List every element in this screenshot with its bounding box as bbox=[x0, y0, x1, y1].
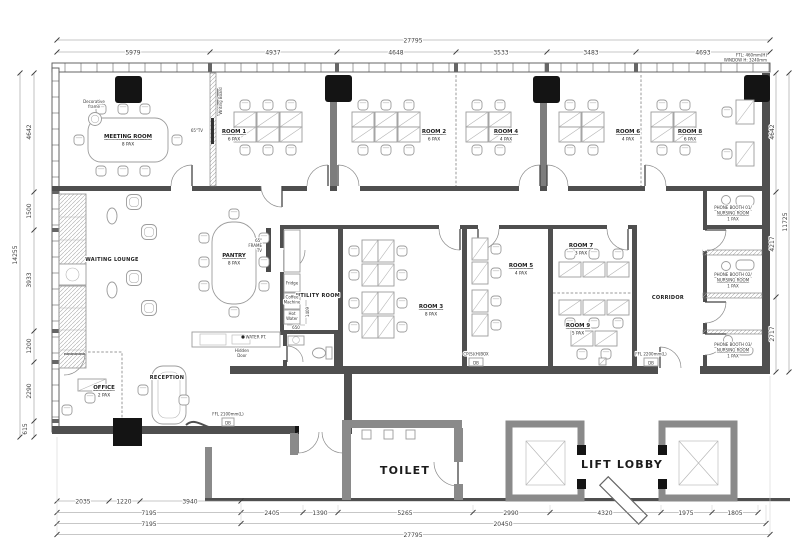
room8-furniture bbox=[651, 100, 754, 166]
label-booth3-pax: 1 PAX bbox=[727, 354, 739, 359]
label-office-pax: 2 PAX bbox=[98, 393, 110, 399]
dim-b2d: 5265 bbox=[397, 510, 412, 517]
room3-furniture bbox=[349, 240, 407, 338]
dimension-chain-left: 14255 4642 1500 3933 1200 2290 615 bbox=[12, 71, 37, 440]
toilet-east-wall-b bbox=[454, 484, 463, 500]
room6-furniture bbox=[559, 100, 604, 155]
wall-room4-room6 bbox=[540, 102, 547, 186]
armchair-icon bbox=[142, 301, 157, 316]
dim-top-2: 4937 bbox=[265, 50, 280, 57]
desk-icon bbox=[352, 127, 374, 142]
room5-furniture bbox=[472, 238, 501, 336]
desk-icon bbox=[489, 112, 511, 127]
mullion-mark bbox=[208, 63, 212, 72]
chair-icon bbox=[381, 100, 391, 110]
dim-left-4: 1200 bbox=[26, 338, 33, 353]
dim-top-4: 3533 bbox=[493, 50, 508, 57]
lift-door-jamb bbox=[658, 479, 667, 489]
room1-furniture bbox=[217, 88, 302, 155]
chair-icon bbox=[229, 209, 239, 219]
wall-room5-room7 bbox=[548, 228, 553, 366]
chair-icon bbox=[491, 244, 501, 254]
label-room3: ROOM 3 bbox=[419, 304, 444, 310]
desk-icon bbox=[583, 300, 605, 315]
label-db-room9: FFL 2200mm(L) bbox=[635, 352, 667, 357]
chair-icon bbox=[358, 145, 368, 155]
water-point-icon bbox=[241, 335, 244, 338]
desk-icon bbox=[378, 240, 394, 262]
wall-toilet-east bbox=[334, 334, 338, 366]
doors bbox=[64, 165, 726, 486]
chair-icon bbox=[172, 135, 182, 145]
column bbox=[115, 76, 142, 103]
urinal-icon bbox=[384, 430, 393, 439]
wall-south-mid bbox=[230, 366, 658, 374]
chair-icon bbox=[140, 166, 150, 176]
label-booth1-pax: 1 PAX bbox=[727, 217, 739, 222]
mullion-mark bbox=[545, 63, 549, 72]
label-frame-tv-c: TV bbox=[256, 248, 262, 253]
column bbox=[533, 76, 560, 103]
lift-door-jamb bbox=[577, 479, 586, 489]
wall-utility-west bbox=[280, 225, 284, 335]
window-wall-top bbox=[52, 63, 770, 72]
label-db-entry: FFL 2100mm(L) bbox=[212, 412, 244, 417]
chair-icon bbox=[565, 249, 575, 259]
desk-icon bbox=[362, 240, 378, 262]
chair-icon bbox=[381, 145, 391, 155]
chair-icon bbox=[118, 104, 128, 114]
label-toilet: TOILET bbox=[380, 464, 430, 477]
external-common-area bbox=[205, 420, 790, 524]
label-room8: ROOM 8 bbox=[678, 129, 703, 135]
chair-icon bbox=[397, 246, 407, 256]
label-room4-pax: 4 PAX bbox=[500, 137, 512, 143]
label-room4: ROOM 4 bbox=[494, 129, 519, 135]
wall-room3-room5 bbox=[462, 228, 467, 366]
room2-furniture bbox=[352, 100, 420, 155]
chair-icon bbox=[349, 246, 359, 256]
label-decorative-frame-b: frame bbox=[88, 104, 100, 109]
label-coffee-b: Machine bbox=[284, 300, 301, 305]
wall-south-west bbox=[52, 426, 298, 434]
mullion-mark bbox=[335, 63, 339, 72]
chair-icon bbox=[74, 135, 84, 145]
desk-icon bbox=[466, 112, 488, 127]
chair-icon bbox=[722, 149, 732, 159]
chair-icon bbox=[613, 249, 623, 259]
dim-b3a: 7195 bbox=[141, 521, 156, 528]
chair-icon bbox=[565, 145, 575, 155]
label-room5: ROOM 5 bbox=[509, 263, 534, 269]
armchair-icon bbox=[127, 271, 142, 286]
label-reception: RECEPTION bbox=[150, 375, 184, 381]
dim-left-1: 4642 bbox=[26, 124, 33, 139]
side-table bbox=[107, 208, 117, 224]
mullion-mark bbox=[454, 63, 458, 72]
chair-icon bbox=[613, 318, 623, 328]
label-room5-pax: 4 PAX bbox=[515, 271, 527, 277]
dim-top-5: 3483 bbox=[583, 50, 598, 57]
stool-icon bbox=[722, 196, 731, 205]
chair-icon bbox=[263, 145, 273, 155]
desk-icon bbox=[559, 300, 581, 315]
label-booth2: PHONE BOOTH 02/ bbox=[714, 272, 752, 277]
label-room1: ROOM 1 bbox=[222, 129, 247, 135]
sofa-icon bbox=[59, 286, 86, 368]
column bbox=[325, 75, 352, 102]
label-hidden-door-b: Door bbox=[237, 353, 247, 358]
chair-icon bbox=[657, 145, 667, 155]
desk-icon bbox=[398, 127, 420, 142]
dim-b3b: 20450 bbox=[493, 521, 512, 528]
chair-icon bbox=[140, 104, 150, 114]
chair-icon bbox=[404, 100, 414, 110]
desk-icon bbox=[375, 127, 397, 142]
label-dim-1409: 1409 bbox=[305, 306, 310, 317]
chair-icon bbox=[657, 100, 667, 110]
dim-right-overall: 11725 bbox=[782, 212, 789, 231]
dim-right-1: 4642 bbox=[769, 124, 776, 139]
toilet-west-wall bbox=[342, 420, 351, 500]
dim-b2g: 1975 bbox=[678, 510, 693, 517]
stool-icon bbox=[722, 262, 731, 271]
desk-icon bbox=[651, 112, 673, 127]
dim-left-overall: 14255 bbox=[12, 245, 19, 264]
dim-b2f: 4320 bbox=[597, 510, 612, 517]
room4-furniture bbox=[466, 100, 511, 155]
dim-top-overall: 27795 bbox=[403, 38, 422, 45]
chair-icon bbox=[286, 145, 296, 155]
dim-b1a: 2035 bbox=[75, 499, 90, 506]
desk-icon bbox=[466, 127, 488, 142]
chair-icon bbox=[495, 145, 505, 155]
desk-icon bbox=[257, 127, 279, 142]
chair-icon bbox=[118, 166, 128, 176]
chair-icon bbox=[96, 166, 106, 176]
desk-icon bbox=[378, 292, 394, 314]
chair-icon bbox=[589, 249, 599, 259]
chair-icon bbox=[138, 385, 148, 395]
urinal-icon bbox=[362, 430, 371, 439]
chair-icon bbox=[179, 395, 189, 405]
label-pantry-pax: 8 PAX bbox=[228, 261, 240, 267]
label-office: OFFICE bbox=[93, 385, 115, 391]
dim-left-2: 1500 bbox=[26, 203, 33, 218]
desk-icon bbox=[352, 112, 374, 127]
dim-right-2: 4217 bbox=[769, 236, 776, 251]
chair-icon bbox=[588, 100, 598, 110]
wc-icon bbox=[313, 348, 326, 358]
chair-icon bbox=[601, 349, 611, 359]
desk-icon bbox=[583, 262, 605, 277]
label-db: DB bbox=[225, 421, 231, 426]
chair-icon bbox=[404, 145, 414, 155]
label-room6-pax: 4 PAX bbox=[622, 137, 634, 143]
desk-icon bbox=[559, 262, 581, 277]
mullion-mark bbox=[52, 419, 59, 423]
wall-room9-corridor bbox=[632, 228, 637, 366]
label-db: DB bbox=[648, 361, 654, 366]
meeting-room-furniture bbox=[74, 104, 214, 176]
label-pantry: PANTRY bbox=[222, 253, 246, 259]
label-room6: ROOM 6 bbox=[616, 129, 641, 135]
chair-icon bbox=[199, 257, 209, 267]
dim-left-5: 2290 bbox=[26, 383, 33, 398]
label-room2-pax: 6 PAX bbox=[428, 137, 440, 143]
column bbox=[744, 75, 770, 102]
meeting-table bbox=[88, 118, 168, 162]
dim-b2a: 7195 bbox=[141, 510, 156, 517]
desk-icon bbox=[378, 316, 394, 338]
dim-b2h: 1805 bbox=[727, 510, 742, 517]
toilet-north-wall bbox=[342, 420, 462, 428]
desk-icon bbox=[674, 112, 696, 127]
desk-icon bbox=[280, 112, 302, 127]
column bbox=[113, 418, 142, 446]
label-room8-pax: 6 PAX bbox=[684, 137, 696, 143]
lift-door-jamb bbox=[658, 445, 667, 455]
dim-left-3: 3933 bbox=[26, 272, 33, 287]
desk-icon bbox=[378, 264, 394, 286]
label-fridge: Fridge bbox=[286, 281, 299, 286]
wall-utility-south bbox=[280, 330, 343, 334]
chair-icon bbox=[199, 233, 209, 243]
label-waiting-lounge: WAITING LOUNGE bbox=[85, 257, 139, 263]
dim-top-3: 4648 bbox=[388, 50, 403, 57]
label-hot-water-b: Water bbox=[286, 316, 298, 321]
desk-icon bbox=[595, 331, 617, 346]
chair-icon bbox=[397, 322, 407, 332]
label-meeting-pax: 8 PAX bbox=[122, 142, 134, 148]
mullion-mark bbox=[634, 63, 638, 72]
side-table bbox=[107, 282, 117, 298]
label-water-pt: WATER PT. bbox=[246, 335, 267, 340]
tv-icon bbox=[211, 118, 214, 144]
desk-icon bbox=[280, 127, 302, 142]
armchair-icon bbox=[127, 195, 142, 210]
label-room9: ROOM 9 bbox=[566, 323, 591, 329]
lobby-stub-wall bbox=[205, 447, 212, 501]
desk-icon bbox=[398, 112, 420, 127]
label-booth3-b: NURSING ROOM bbox=[717, 348, 750, 353]
chair-icon bbox=[349, 298, 359, 308]
desk-icon bbox=[559, 112, 581, 127]
label-window-note-b: WINDOW H: 3240mm bbox=[724, 58, 767, 63]
chair-icon bbox=[263, 100, 273, 110]
wall-south-east bbox=[700, 366, 770, 374]
chair-icon bbox=[589, 318, 599, 328]
chair-icon bbox=[397, 298, 407, 308]
dimension-chain-top: 27795 5979 4937 4648 3533 3483 4693 bbox=[55, 38, 773, 57]
urinal-icon bbox=[406, 430, 415, 439]
decorative-frame-icon bbox=[89, 113, 102, 126]
mullion-mark bbox=[52, 329, 59, 333]
desk-icon bbox=[472, 290, 488, 312]
chair-icon bbox=[397, 270, 407, 280]
wall-room1-room2 bbox=[330, 102, 337, 186]
wall-booth2-corridor bbox=[703, 293, 762, 298]
chair-icon bbox=[577, 349, 587, 359]
wc-tank bbox=[326, 347, 332, 359]
mullion-mark bbox=[52, 228, 59, 232]
dim-left-6: 615 bbox=[22, 423, 29, 435]
chair-icon bbox=[286, 100, 296, 110]
chair-icon bbox=[259, 281, 269, 291]
chair-icon bbox=[680, 100, 690, 110]
side-table bbox=[59, 264, 86, 285]
wall-booth1-booth2 bbox=[703, 250, 762, 255]
label-db-room3: CP(S)(H)BOX bbox=[463, 352, 489, 357]
booth-desk bbox=[736, 260, 754, 270]
desk-icon bbox=[651, 127, 673, 142]
dim-b1b: 1220 bbox=[116, 499, 131, 506]
lift-shaft-2 bbox=[662, 424, 734, 498]
chair-icon bbox=[358, 100, 368, 110]
chair-icon bbox=[491, 268, 501, 278]
label-room1-pax: 6 PAX bbox=[228, 137, 240, 143]
desk-icon bbox=[375, 112, 397, 127]
dim-b2c: 1390 bbox=[312, 510, 327, 517]
label-booth2-b: NURSING ROOM bbox=[717, 278, 750, 283]
sofa-icon bbox=[59, 194, 86, 264]
label-room2: ROOM 2 bbox=[422, 129, 447, 135]
label-booth2-pax: 1 PAX bbox=[727, 284, 739, 289]
room9-furniture bbox=[559, 300, 629, 359]
label-writing-board: Writing Board bbox=[218, 87, 223, 115]
waiting-lounge-furniture bbox=[59, 194, 157, 368]
label-room7-pax: 3 PAX bbox=[575, 251, 587, 257]
chair-icon bbox=[680, 145, 690, 155]
chair-icon bbox=[472, 145, 482, 155]
desk-icon bbox=[582, 127, 604, 142]
dim-b4a: 27795 bbox=[403, 532, 422, 539]
chair-icon bbox=[62, 405, 72, 415]
room7-furniture bbox=[559, 249, 629, 277]
chair-icon bbox=[472, 100, 482, 110]
chair-icon bbox=[491, 320, 501, 330]
dim-b2e: 2990 bbox=[503, 510, 518, 517]
toilet-east-wall-a bbox=[454, 428, 463, 462]
chair-icon bbox=[240, 145, 250, 155]
dim-b1c: 3940 bbox=[182, 499, 197, 506]
label-room9-pax: 5 PAX bbox=[572, 331, 584, 337]
desk-icon bbox=[607, 300, 629, 315]
desk-icon bbox=[472, 262, 488, 284]
chair-icon bbox=[199, 281, 209, 291]
desk-icon bbox=[472, 314, 488, 336]
desk-icon bbox=[607, 262, 629, 277]
chair-icon bbox=[240, 100, 250, 110]
desk-icon bbox=[234, 112, 256, 127]
desk-icon bbox=[362, 292, 378, 314]
chair-icon bbox=[495, 100, 505, 110]
label-corridor: CORRIDOR bbox=[652, 295, 684, 301]
floor-plan-drawing: MEETING ROOM 8 PAX ROOM 1 6 PAX ROOM 2 6… bbox=[0, 0, 800, 546]
wall-toilet-west-a bbox=[283, 334, 287, 346]
floor-plan-page: MEETING ROOM 8 PAX ROOM 1 6 PAX ROOM 2 6… bbox=[0, 0, 800, 546]
desk-icon bbox=[472, 238, 488, 260]
chair-icon bbox=[229, 307, 239, 317]
label-room7: ROOM 7 bbox=[569, 243, 594, 249]
mullion-mark bbox=[52, 360, 59, 364]
wall-vestibule-east bbox=[344, 374, 352, 426]
chair-icon bbox=[259, 257, 269, 267]
label-booth1: PHONE BOOTH 01/ bbox=[714, 205, 752, 210]
chair-icon bbox=[565, 100, 575, 110]
chair-icon bbox=[85, 393, 95, 403]
desk-icon bbox=[257, 112, 279, 127]
label-room3-pax: 8 PAX bbox=[425, 312, 437, 318]
lift-door-jamb bbox=[577, 445, 586, 455]
label-db: DB bbox=[473, 361, 479, 366]
dim-top-1: 5979 bbox=[125, 50, 140, 57]
chair-icon bbox=[349, 270, 359, 280]
pantry-counter bbox=[284, 230, 300, 272]
dimension-chain-right: 4642 4217 2717 11725 bbox=[769, 71, 792, 375]
chair-icon bbox=[349, 322, 359, 332]
lift-shaft-1 bbox=[509, 424, 581, 498]
window-wall-left bbox=[52, 68, 59, 432]
chair-icon bbox=[491, 296, 501, 306]
dim-top-6: 4693 bbox=[695, 50, 710, 57]
chair-icon bbox=[588, 145, 598, 155]
desk-icon bbox=[362, 264, 378, 286]
label-dim-650: 650 bbox=[292, 325, 300, 330]
dim-right-3: 2717 bbox=[769, 326, 776, 341]
armchair-icon bbox=[142, 225, 157, 240]
corridor-wall bbox=[290, 433, 298, 455]
dim-b2b: 2405 bbox=[264, 510, 279, 517]
desk-icon bbox=[559, 127, 581, 142]
desk-icon bbox=[362, 316, 378, 338]
wall-room3-west bbox=[338, 226, 343, 374]
chair-icon bbox=[722, 107, 732, 117]
label-booth3: PHONE BOOTH 03/ bbox=[714, 342, 752, 347]
desk-icon bbox=[582, 112, 604, 127]
label-utility-room: UTILITY ROOM bbox=[296, 293, 340, 299]
label-65tv: 65"TV bbox=[191, 128, 203, 133]
label-meeting-room: MEETING ROOM bbox=[104, 134, 152, 140]
label-lift-lobby: LIFT LOBBY bbox=[581, 458, 663, 471]
label-booth1-b: NURSING ROOM bbox=[717, 211, 750, 216]
